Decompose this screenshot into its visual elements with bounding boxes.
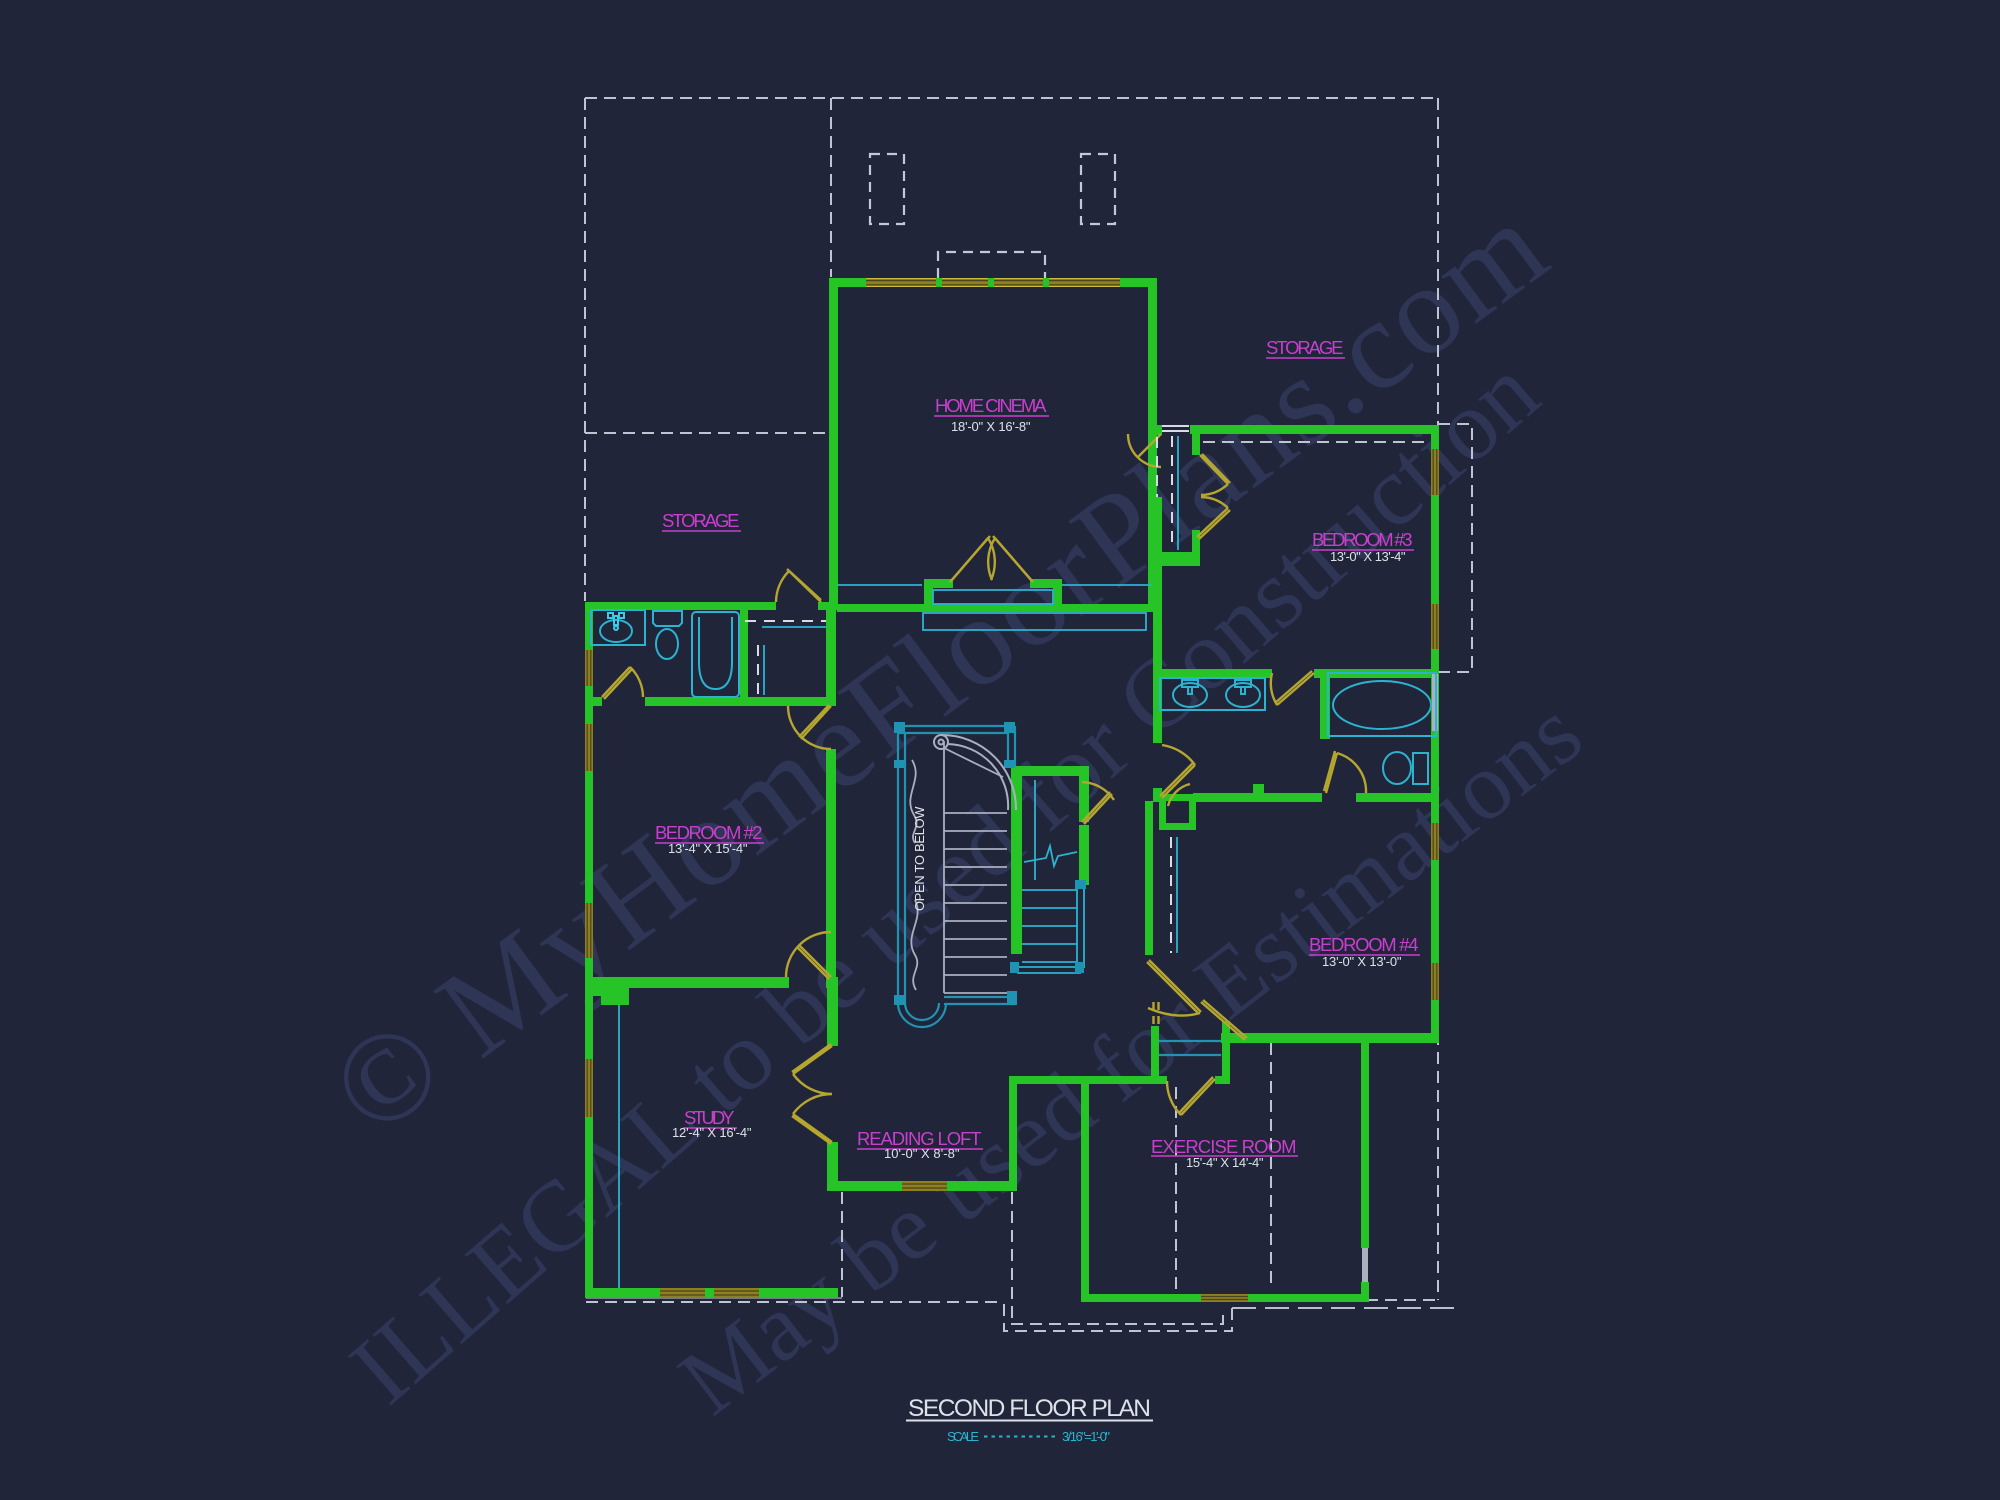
svg-text:STORAGE: STORAGE <box>1266 337 1345 358</box>
svg-text:EXERCISE ROOM: EXERCISE ROOM <box>1151 1136 1298 1157</box>
svg-text:18'-0" X 16'-8": 18'-0" X 16'-8" <box>951 419 1031 434</box>
svg-text:BEDROOM #2: BEDROOM #2 <box>655 822 764 843</box>
svg-text:BEDROOM #4: BEDROOM #4 <box>1309 934 1420 955</box>
svg-text:12'-4" X 16'-4": 12'-4" X 16'-4" <box>672 1125 752 1140</box>
svg-text:13'-4" X 15'-4": 13'-4" X 15'-4" <box>668 841 748 856</box>
svg-text:BEDROOM #3: BEDROOM #3 <box>1312 529 1414 550</box>
svg-text:3/16"=1'-0": 3/16"=1'-0" <box>1062 1429 1110 1444</box>
svg-text:STORAGE: STORAGE <box>662 510 741 531</box>
svg-text:10'-0" X 8'-8": 10'-0" X 8'-8" <box>884 1146 960 1161</box>
svg-text:OPEN TO BELOW: OPEN TO BELOW <box>912 806 927 911</box>
svg-text:13'-0" X 13'-0": 13'-0" X 13'-0" <box>1322 954 1402 969</box>
svg-text:SECOND FLOOR PLAN: SECOND FLOOR PLAN <box>908 1395 1151 1422</box>
svg-text:13'-0" X 13'-4": 13'-0" X 13'-4" <box>1330 549 1406 564</box>
svg-text:15'-4" X 14'-4": 15'-4" X 14'-4" <box>1186 1155 1264 1170</box>
svg-text:SCALE: SCALE <box>947 1429 979 1444</box>
svg-text:HOME CINEMA: HOME CINEMA <box>935 395 1048 416</box>
